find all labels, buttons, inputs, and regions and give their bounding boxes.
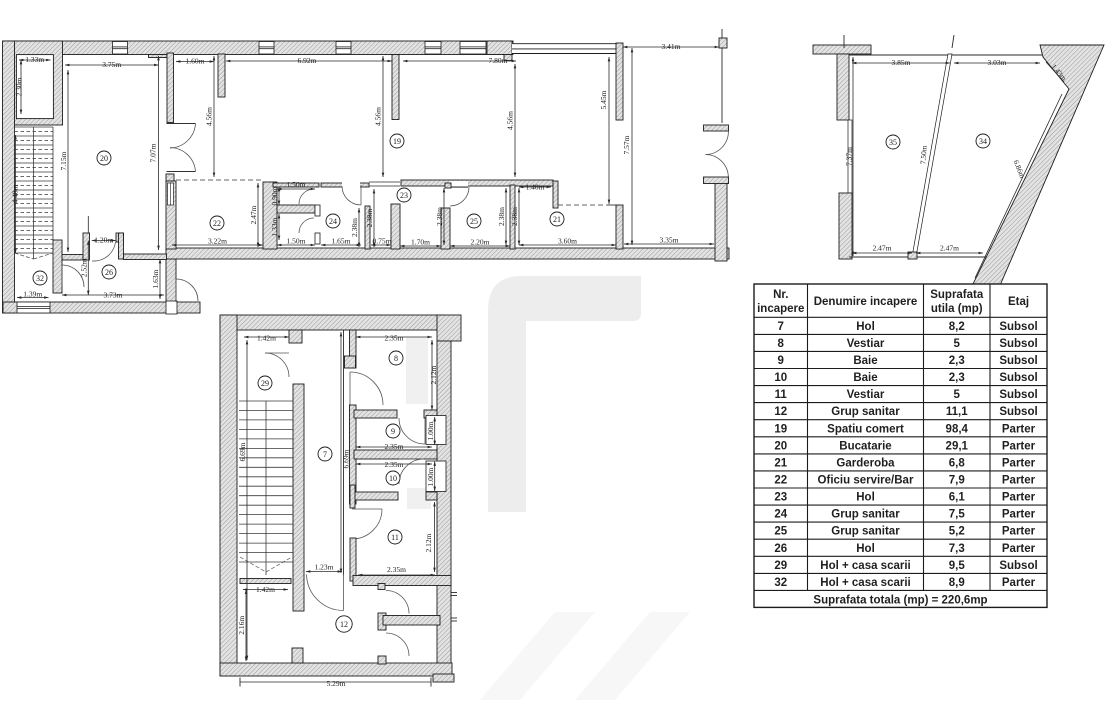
svg-text:8,2: 8,2: [949, 321, 965, 333]
svg-text:19: 19: [393, 137, 401, 146]
svg-text:Grup sanitar: Grup sanitar: [831, 526, 900, 538]
svg-text:3.75m: 3.75m: [102, 60, 121, 69]
svg-text:2.12m: 2.12m: [424, 533, 433, 552]
svg-text:1.20m: 1.20m: [94, 236, 113, 245]
svg-text:Grup sanitar: Grup sanitar: [831, 509, 900, 521]
svg-text:2.52m: 2.52m: [80, 258, 89, 277]
svg-text:25: 25: [470, 217, 478, 226]
svg-text:20: 20: [100, 154, 108, 163]
svg-text:3.85m: 3.85m: [892, 58, 911, 67]
svg-text:1.70m: 1.70m: [411, 238, 430, 247]
svg-text:Parter: Parter: [1002, 526, 1036, 538]
svg-text:1.60m: 1.60m: [186, 57, 205, 66]
svg-text:20: 20: [774, 440, 787, 452]
svg-text:Hol: Hol: [856, 543, 875, 555]
svg-text:Vestiar: Vestiar: [847, 338, 885, 350]
svg-text:26: 26: [774, 543, 787, 555]
svg-text:29: 29: [774, 560, 787, 572]
svg-text:0.75m: 0.75m: [373, 237, 392, 246]
svg-text:7,5: 7,5: [949, 509, 966, 521]
svg-text:23: 23: [774, 492, 787, 504]
svg-text:7.50m: 7.50m: [918, 145, 928, 165]
svg-text:1.40m: 1.40m: [526, 183, 545, 192]
svg-text:Subsol: Subsol: [999, 389, 1037, 401]
svg-text:3.73m: 3.73m: [104, 291, 123, 300]
svg-text:1.63m: 1.63m: [151, 269, 160, 288]
svg-text:6.69m: 6.69m: [342, 449, 351, 468]
svg-text:Hol + casa scarii: Hol + casa scarii: [820, 577, 910, 589]
svg-text:Denumire incapere: Denumire incapere: [814, 296, 918, 308]
svg-text:98,4: 98,4: [946, 423, 969, 435]
svg-text:8,9: 8,9: [949, 577, 965, 589]
svg-text:21: 21: [553, 215, 561, 224]
svg-text:9: 9: [391, 427, 395, 436]
svg-text:26: 26: [105, 268, 113, 277]
svg-text:Parter: Parter: [1002, 492, 1036, 504]
svg-text:1.42m: 1.42m: [257, 334, 276, 343]
svg-text:Parter: Parter: [1002, 577, 1036, 589]
svg-text:2,3: 2,3: [949, 372, 965, 384]
svg-text:Subsol: Subsol: [999, 372, 1037, 384]
svg-text:Baie: Baie: [853, 372, 877, 384]
svg-text:Subsol: Subsol: [999, 560, 1037, 572]
svg-text:2.35m: 2.35m: [385, 334, 404, 343]
svg-text:3.41m: 3.41m: [662, 42, 681, 51]
svg-text:2.16m: 2.16m: [237, 616, 246, 635]
svg-text:2.20m: 2.20m: [471, 238, 490, 247]
svg-text:7,3: 7,3: [949, 543, 965, 555]
svg-text:7.80m: 7.80m: [489, 56, 508, 65]
svg-text:Baie: Baie: [853, 355, 877, 367]
svg-text:9,5: 9,5: [949, 560, 966, 572]
svg-text:2.35m: 2.35m: [385, 460, 404, 469]
svg-text:24: 24: [774, 509, 787, 521]
svg-text:6,8: 6,8: [949, 458, 966, 470]
svg-text:Parter: Parter: [1002, 423, 1036, 435]
svg-text:7.15m: 7.15m: [59, 151, 68, 170]
svg-text:Subsol: Subsol: [999, 321, 1037, 333]
svg-text:22: 22: [774, 475, 787, 487]
svg-text:1.00m: 1.00m: [426, 421, 435, 440]
svg-text:Bucatarie: Bucatarie: [839, 440, 891, 452]
svg-text:2,3: 2,3: [949, 355, 965, 367]
svg-text:2.35m: 2.35m: [387, 565, 406, 574]
svg-text:2.30m: 2.30m: [15, 77, 24, 96]
svg-text:5.29m: 5.29m: [327, 679, 346, 688]
svg-text:1.65m: 1.65m: [332, 237, 351, 246]
svg-text:5.45m: 5.45m: [599, 90, 608, 109]
svg-text:2.38m: 2.38m: [365, 208, 374, 227]
svg-text:32: 32: [774, 577, 787, 589]
svg-text:incapere: incapere: [757, 303, 804, 315]
svg-text:1.50m: 1.50m: [287, 180, 306, 189]
svg-text:24: 24: [329, 217, 337, 226]
svg-text:Vestiar: Vestiar: [847, 389, 885, 401]
svg-text:19: 19: [774, 423, 787, 435]
svg-text:Suprafata totala (mp) = 220,6m: Suprafata totala (mp) = 220,6mp: [813, 594, 987, 606]
svg-text:12: 12: [340, 620, 348, 629]
svg-text:Subsol: Subsol: [999, 355, 1037, 367]
svg-text:1.33m: 1.33m: [25, 55, 44, 64]
svg-text:Parter: Parter: [1002, 475, 1036, 487]
svg-text:10: 10: [389, 474, 397, 483]
svg-text:Subsol: Subsol: [999, 406, 1037, 418]
svg-text:2.47m: 2.47m: [249, 205, 258, 224]
svg-text:35: 35: [889, 138, 897, 147]
svg-text:1.50m: 1.50m: [287, 237, 306, 246]
svg-text:Spatiu comert: Spatiu comert: [827, 423, 904, 435]
svg-text:Nr.: Nr.: [773, 289, 788, 301]
svg-text:Hol: Hol: [856, 321, 875, 333]
svg-text:Parter: Parter: [1002, 458, 1036, 470]
svg-text:4.56m: 4.56m: [374, 107, 383, 126]
svg-text:7: 7: [323, 450, 327, 459]
svg-text:6.69m: 6.69m: [238, 442, 247, 461]
svg-text:Parter: Parter: [1002, 543, 1036, 555]
svg-text:Parter: Parter: [1002, 509, 1036, 521]
svg-text:Grup sanitar: Grup sanitar: [831, 406, 900, 418]
svg-text:2.38m: 2.38m: [510, 207, 519, 226]
svg-text:7.07m: 7.07m: [149, 143, 158, 162]
svg-text:8: 8: [778, 338, 785, 350]
svg-text:Suprafata: Suprafata: [930, 289, 984, 301]
svg-text:12: 12: [774, 406, 787, 418]
svg-text:3.60m: 3.60m: [558, 237, 577, 246]
svg-text:2.38m: 2.38m: [435, 207, 444, 226]
svg-text:7.37m: 7.37m: [845, 147, 854, 166]
svg-text:4.56m: 4.56m: [506, 111, 515, 130]
svg-text:5: 5: [954, 338, 961, 350]
svg-text:1.39m: 1.39m: [23, 290, 42, 299]
svg-text:1.00m: 1.00m: [426, 467, 435, 486]
svg-text:1.33m: 1.33m: [270, 217, 279, 236]
svg-text:utila (mp): utila (mp): [931, 303, 983, 315]
svg-text:32: 32: [36, 274, 44, 283]
svg-text:Etaj: Etaj: [1008, 296, 1029, 308]
svg-text:8: 8: [394, 354, 398, 363]
svg-text:11,1: 11,1: [946, 406, 968, 418]
svg-text:7.57m: 7.57m: [622, 135, 631, 154]
svg-text:34: 34: [979, 137, 987, 146]
svg-text:3.03m: 3.03m: [988, 58, 1007, 67]
svg-text:5: 5: [954, 389, 961, 401]
svg-text:6.86m: 6.86m: [1012, 159, 1028, 180]
svg-text:0.90m: 0.90m: [270, 186, 279, 205]
svg-text:4.48m: 4.48m: [11, 184, 20, 203]
svg-text:2.12m: 2.12m: [429, 365, 438, 384]
svg-text:6,1: 6,1: [949, 492, 966, 504]
svg-text:Subsol: Subsol: [999, 338, 1037, 350]
svg-text:6.92m: 6.92m: [298, 56, 317, 65]
svg-text:2.35m: 2.35m: [385, 442, 404, 451]
svg-text:5,2: 5,2: [949, 526, 965, 538]
svg-text:2.47m: 2.47m: [873, 244, 892, 253]
svg-text:1.23m: 1.23m: [315, 563, 334, 572]
svg-text:7,9: 7,9: [949, 475, 965, 487]
svg-text:29,1: 29,1: [946, 440, 969, 452]
svg-text:25: 25: [774, 526, 787, 538]
svg-text:29: 29: [261, 379, 269, 388]
svg-text:1.42m: 1.42m: [256, 585, 275, 594]
svg-text:3.35m: 3.35m: [660, 236, 679, 245]
svg-text:Hol: Hol: [856, 492, 875, 504]
svg-text:7: 7: [778, 321, 784, 333]
svg-text:4.56m: 4.56m: [205, 107, 214, 126]
svg-text:9: 9: [778, 355, 784, 367]
svg-text:11: 11: [391, 533, 399, 542]
svg-text:Hol + casa scarii: Hol + casa scarii: [820, 560, 910, 572]
svg-text:10: 10: [774, 372, 787, 384]
svg-text:2.38m: 2.38m: [350, 218, 359, 237]
svg-text:3.22m: 3.22m: [208, 237, 227, 246]
svg-text:2.47m: 2.47m: [940, 244, 959, 253]
svg-text:2.38m: 2.38m: [497, 207, 506, 226]
svg-text:Oficiu servire/Bar: Oficiu servire/Bar: [818, 475, 914, 487]
svg-text:Garderoba: Garderoba: [836, 458, 895, 470]
svg-text:23: 23: [400, 191, 408, 200]
svg-text:21: 21: [774, 458, 787, 470]
svg-text:11: 11: [775, 389, 788, 401]
svg-text:22: 22: [213, 219, 221, 228]
svg-text:Parter: Parter: [1002, 440, 1036, 452]
